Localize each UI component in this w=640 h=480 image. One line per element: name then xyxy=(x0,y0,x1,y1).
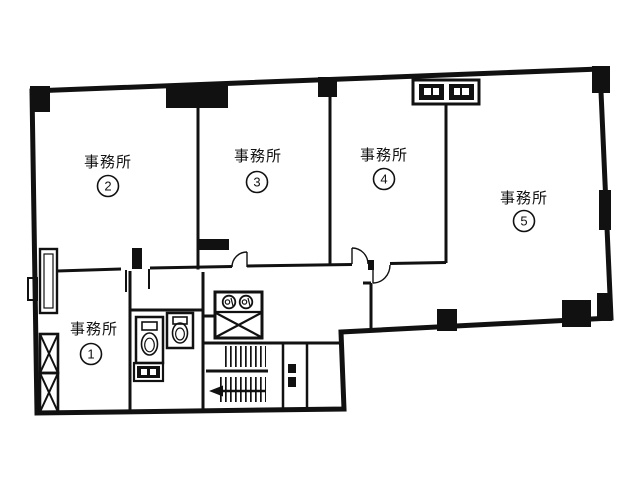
toilet-icon xyxy=(173,317,188,343)
column-top-right xyxy=(592,66,610,93)
column-top-center xyxy=(166,84,228,108)
column-bottom-right xyxy=(597,293,612,321)
washbasin-icon xyxy=(223,296,236,309)
room-office-1: 事務所 1 xyxy=(70,321,118,365)
exterior-wall xyxy=(32,69,611,413)
room-number: 4 xyxy=(380,172,387,187)
room-office-3: 事務所 3 xyxy=(234,148,282,193)
door-header-block xyxy=(132,248,142,269)
room-office-2: 事務所 2 xyxy=(84,154,132,197)
pipe-space-box xyxy=(134,363,163,381)
duct-shaft-boxes xyxy=(413,80,479,104)
floor-plan-drawing: 事務所 2 事務所 3 事務所 4 事務所 5 事務所 1 xyxy=(0,0,640,480)
column-top-left xyxy=(30,86,50,112)
room-label: 事務所 xyxy=(360,147,408,164)
room-number: 3 xyxy=(253,175,260,190)
office4-door-arc xyxy=(352,248,368,264)
column-partition-end xyxy=(197,239,229,250)
staircase xyxy=(209,343,307,410)
elevator-x-icon xyxy=(216,313,261,337)
stair-treads-upper xyxy=(222,346,266,367)
duct-shaft-icon xyxy=(419,84,444,100)
room-number: 1 xyxy=(87,347,94,362)
room-label: 事務所 xyxy=(500,190,548,207)
toilet-block-walls xyxy=(130,272,215,411)
corridor-wall xyxy=(57,263,446,272)
room-number: 5 xyxy=(520,214,527,229)
column-office5-south-2 xyxy=(562,300,591,327)
room-office-5: 事務所 5 xyxy=(500,190,548,232)
shaft-glyph-icon xyxy=(288,377,296,387)
column-top-mid xyxy=(318,77,337,97)
west-shaft-inner xyxy=(44,254,53,308)
room-label: 事務所 xyxy=(234,148,282,165)
shaft-x-icon xyxy=(40,373,58,412)
floor-plan-canvas: 事務所 2 事務所 3 事務所 4 事務所 5 事務所 1 xyxy=(0,0,640,480)
toilet-stall xyxy=(136,317,163,363)
office5-door-arc xyxy=(373,265,390,283)
washbasin-icon xyxy=(240,296,253,309)
shaft-glyph-icon xyxy=(288,364,296,373)
west-shaft xyxy=(40,249,57,313)
pipe-space-icon xyxy=(137,366,160,378)
building-outline xyxy=(32,69,611,413)
room-office-4: 事務所 4 xyxy=(360,147,408,190)
office5-west-wall xyxy=(363,283,371,331)
duct-shaft-icon xyxy=(449,84,474,100)
toilet-door-arc xyxy=(232,252,247,267)
elevator-unit xyxy=(215,292,262,338)
doors xyxy=(126,248,390,292)
column-office5-south-1 xyxy=(437,309,457,331)
column-right-wall xyxy=(599,190,611,230)
toilet-icon xyxy=(142,322,158,355)
room-number: 2 xyxy=(104,179,111,194)
toilet-block xyxy=(134,313,193,381)
stair-treads-lower xyxy=(220,377,266,402)
stair-side-shaft xyxy=(283,343,307,410)
shaft-x-icon xyxy=(40,334,58,373)
room-label: 事務所 xyxy=(70,321,118,338)
room-label: 事務所 xyxy=(84,154,132,171)
